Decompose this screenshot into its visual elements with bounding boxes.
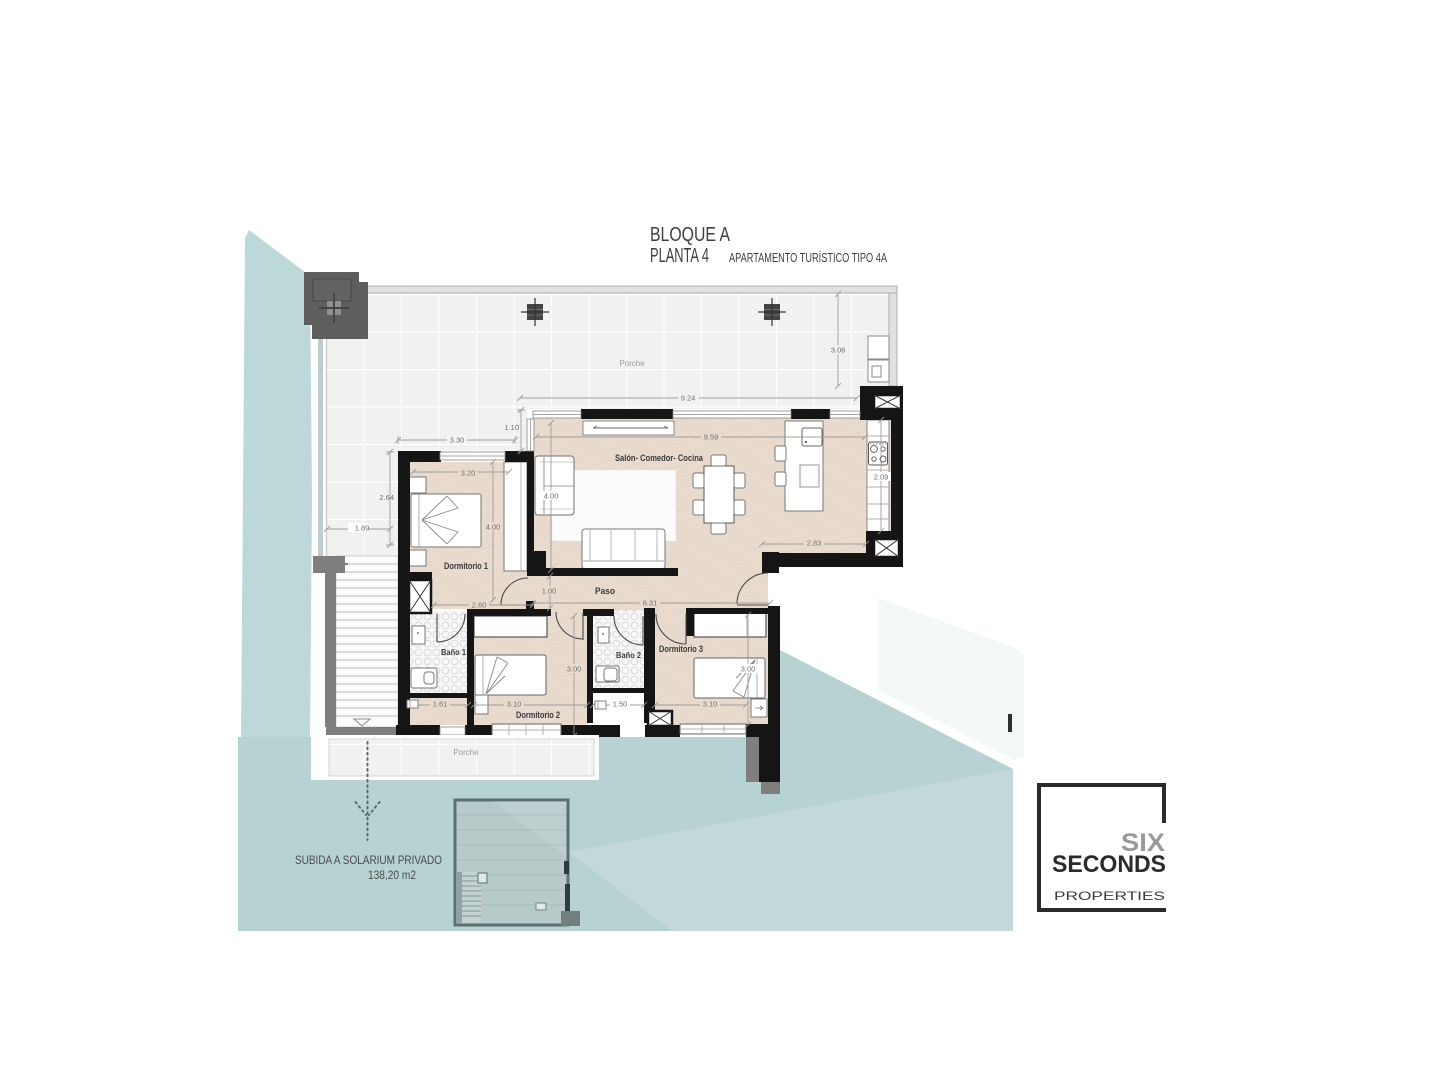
- svg-text:Salón- Comedor- Cocina: Salón- Comedor- Cocina: [615, 453, 704, 463]
- svg-text:Porche: Porche: [453, 748, 479, 757]
- svg-text:Baño 2: Baño 2: [616, 650, 641, 660]
- svg-text:SUBIDA A SOLARIUM PRIVADO: SUBIDA A SOLARIUM PRIVADO: [295, 853, 442, 867]
- svg-text:3.00: 3.00: [567, 665, 582, 674]
- svg-text:2.64: 2.64: [379, 493, 394, 502]
- svg-text:3.30: 3.30: [450, 436, 465, 445]
- svg-text:1.10: 1.10: [504, 423, 519, 432]
- svg-text:3.00: 3.00: [741, 665, 756, 674]
- svg-text:4.00: 4.00: [544, 492, 559, 501]
- svg-text:2.09: 2.09: [874, 473, 889, 482]
- svg-text:Dormitorio 2: Dormitorio 2: [516, 710, 560, 720]
- svg-text:Dormitorio 3: Dormitorio 3: [659, 644, 703, 654]
- svg-text:2.83: 2.83: [807, 539, 822, 548]
- svg-text:3.10: 3.10: [507, 700, 522, 709]
- svg-text:3.08: 3.08: [831, 346, 846, 355]
- svg-text:Dormitorio 1: Dormitorio 1: [444, 561, 488, 571]
- svg-text:3.20: 3.20: [461, 469, 476, 478]
- svg-text:9.59: 9.59: [704, 433, 719, 442]
- svg-text:SECONDS: SECONDS: [1052, 851, 1166, 878]
- svg-text:PROPERTIES: PROPERTIES: [1054, 891, 1165, 903]
- svg-text:1.00: 1.00: [542, 587, 557, 596]
- svg-text:Baño 1: Baño 1: [441, 647, 466, 657]
- svg-text:1.61: 1.61: [433, 700, 448, 709]
- svg-text:9.24: 9.24: [681, 394, 696, 403]
- svg-text:PLANTA 4: PLANTA 4: [650, 245, 709, 267]
- svg-text:BLOQUE A: BLOQUE A: [650, 224, 731, 246]
- svg-text:3.10: 3.10: [703, 700, 718, 709]
- svg-text:1.50: 1.50: [613, 700, 628, 709]
- svg-text:4.00: 4.00: [486, 523, 501, 532]
- svg-text:138,20 m2: 138,20 m2: [368, 870, 416, 882]
- svg-text:APARTAMENTO TURÍSTICO TIPO 4A: APARTAMENTO TURÍSTICO TIPO 4A: [729, 250, 887, 265]
- svg-text:2.60: 2.60: [472, 601, 487, 610]
- svg-text:Porche: Porche: [619, 359, 645, 368]
- svg-text:1.89: 1.89: [355, 524, 370, 533]
- svg-text:6.31: 6.31: [643, 599, 658, 608]
- svg-text:Paso: Paso: [595, 586, 615, 596]
